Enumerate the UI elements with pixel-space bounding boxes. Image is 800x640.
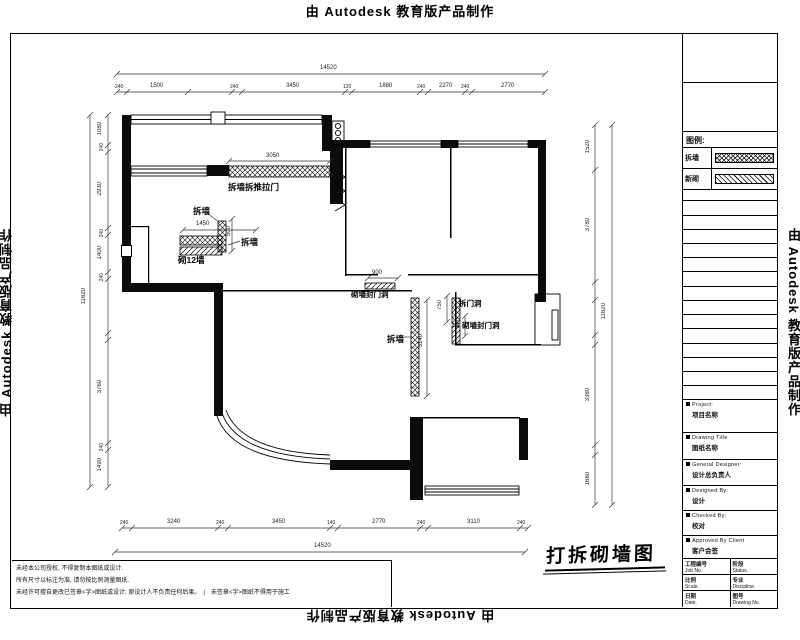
dim-bottom-small: 240: [417, 520, 425, 526]
dim-top-overall: 14520: [320, 65, 337, 71]
approved-label: Approved By Client: [686, 538, 774, 544]
status-en: Status.: [733, 568, 776, 574]
annotation-seal-door-opening-1: 砌墙封门洞: [351, 289, 389, 300]
annotation-build-12-wall: 砌12墙: [178, 254, 204, 266]
dim-label: 900: [372, 270, 382, 276]
dim-left: 2930: [97, 182, 103, 195]
field-date-drawingno: 日期 Date. 图号 Drawing No.: [683, 591, 777, 607]
note-line-1: 未经本公司授权, 不得复制本图纸或设计.: [16, 563, 391, 575]
field-jobno-status: 工程编号 Job No. 阶段 Status.: [683, 559, 777, 575]
field-project: Project: 项目名称: [683, 400, 777, 432]
title-block-empty-row: [683, 201, 777, 215]
scale-en: Scale.: [685, 584, 728, 590]
dim-top-small: 240: [417, 84, 425, 90]
dim-top: 2270: [439, 83, 452, 89]
date-cn: 日期: [685, 592, 728, 600]
title-block-empty-row: [683, 287, 777, 301]
dim-left-small: 240: [99, 143, 105, 151]
drawing-title-label: Drawing Title: [686, 435, 774, 441]
title-block-empty-row: [683, 272, 777, 286]
dim-label: 420: [456, 318, 462, 328]
status-cn: 阶段: [733, 560, 776, 568]
designed-by-value: 设计: [692, 495, 774, 505]
legend-new-swatch: [715, 174, 774, 184]
dim-bottom: 2770: [372, 519, 385, 525]
dim-right-overall: 11620: [601, 303, 607, 319]
legend-new-label: 新砌: [683, 169, 712, 189]
title-block-empty-row: [683, 216, 777, 230]
dim-left-small: 240: [99, 229, 105, 237]
title-block-empty-row: [683, 329, 777, 343]
field-designed-by: Designed By: 设计: [683, 486, 777, 511]
annotation-seal-door-opening-2: 砌墙封门洞: [462, 320, 500, 331]
dim-label: 500: [226, 226, 232, 236]
note-line-3: 未经许可擅自更改已签章<字>图纸或设计, 原设计人不负责任何后果。 | 未签章<…: [16, 587, 391, 599]
dim-left-small: 240: [99, 273, 105, 281]
dim-bottom-small: 140: [327, 520, 335, 526]
annotation-demolish-sliding-door: 拆墙拆推拉门: [228, 181, 279, 193]
dim-left-small: 240: [99, 443, 105, 451]
job-no-en: Job No.: [685, 568, 728, 574]
annotation-demolish-door-opening: 拆门洞: [459, 298, 482, 309]
notes-block: 未经本公司授权, 不得复制本图纸或设计. 所有尺寸以标注为准, 请勿按比例测量图…: [12, 560, 392, 607]
legend-demolish-swatch: [715, 153, 774, 163]
title-block-empty-row: [683, 33, 777, 83]
note-line-2: 所有尺寸以标注为准, 请勿按比例测量图纸.: [16, 575, 391, 587]
dim-top: 1880: [379, 83, 392, 89]
job-no-cn: 工程编号: [685, 560, 728, 568]
date-cell: 日期 Date.: [683, 591, 731, 607]
dim-bottom-overall: 14520: [314, 543, 331, 549]
dim-left-overall: 11620: [81, 288, 87, 304]
dim-bottom-small: 240: [120, 520, 128, 526]
dim-right: 3780: [585, 218, 591, 231]
legend-title: 图例:: [683, 132, 777, 148]
dim-top: 3450: [286, 83, 299, 89]
designed-by-label: Designed By:: [686, 488, 774, 494]
legend-row-new: 新砌: [683, 169, 777, 190]
floor-plan-canvas: [0, 0, 800, 640]
title-block: 图例: 拆墙 新砌 Project: 项目名称 Drawing Title 图纸: [682, 33, 777, 607]
title-block-empty-row: [683, 230, 777, 244]
title-block-empty-row: [683, 315, 777, 329]
checked-by-label: Checked By:: [686, 513, 774, 519]
dim-label: 3050: [266, 153, 279, 159]
dim-right: 1520: [585, 140, 591, 153]
discipline-en: Discipline.: [733, 584, 776, 590]
dim-left: 1490: [97, 458, 103, 471]
title-block-empty-row: [683, 386, 777, 400]
field-scale-discipline: 比例 Scale. 专业 Discipline.: [683, 575, 777, 591]
dim-top-small: 240: [461, 84, 469, 90]
title-block-empty-row: [683, 344, 777, 358]
title-block-empty-row: [683, 258, 777, 272]
dim-top: 1500: [150, 83, 163, 89]
annotation-demolish-wall-2: 拆墙: [241, 236, 258, 248]
discipline-cell: 专业 Discipline.: [731, 575, 778, 590]
dim-left: 3760: [97, 380, 103, 393]
date-en: Date.: [685, 600, 728, 606]
dim-bottom-small: 240: [517, 520, 525, 526]
dim-label: 750: [437, 300, 443, 310]
title-block-empty-row: [683, 372, 777, 386]
dim-label: 3140: [418, 334, 424, 347]
dim-bottom: 3240: [167, 519, 180, 525]
title-block-empty-row: [683, 244, 777, 258]
dim-top: 2770: [501, 83, 514, 89]
field-approved: Approved By Client 客户会签: [683, 536, 777, 559]
scale-cn: 比例: [685, 576, 728, 584]
title-block-empty-row: [683, 190, 777, 201]
field-general-designer: General Designer: 设计总负责人: [683, 460, 777, 487]
drawing-no-en: Drawing No.: [733, 600, 776, 606]
dim-left: 1080: [97, 122, 103, 135]
approved-value: 客户会签: [692, 545, 774, 555]
dim-bottom: 3110: [467, 519, 480, 525]
drawing-sheet: 由 Autodesk 教育版产品制作 由 Autodesk 教育版产品制作 由 …: [0, 0, 800, 640]
legend-demolish-label: 拆墙: [683, 148, 712, 168]
annotation-demolish-wall-1: 拆墙: [193, 205, 210, 217]
discipline-cn: 专业: [733, 576, 776, 584]
drawing-name-stamp: 打拆砌墙图: [546, 539, 657, 569]
field-drawing-title: Drawing Title 图纸名称: [683, 433, 777, 460]
general-designer-label: General Designer:: [686, 462, 774, 468]
scale-cell: 比例 Scale.: [683, 575, 731, 590]
legend-row-demolish: 拆墙: [683, 148, 777, 169]
dim-bottom: 3450: [272, 519, 285, 525]
dim-top-small: 120: [343, 84, 351, 90]
general-designer-value: 设计总负责人: [692, 469, 774, 479]
title-block-empty-row: [683, 358, 777, 372]
dim-right: 3380: [585, 388, 591, 401]
annotation-demolish-wall-3: 拆墙: [387, 333, 404, 345]
project-value: 项目名称: [692, 409, 774, 419]
job-no-cell: 工程编号 Job No.: [683, 559, 731, 574]
dim-left: 1400: [97, 246, 103, 259]
title-block-empty-row: [683, 301, 777, 315]
field-checked-by: Checked By: 校对: [683, 511, 777, 536]
checked-by-value: 校对: [692, 520, 774, 530]
hollow-column: [122, 246, 132, 257]
dim-right: 1680: [585, 472, 591, 485]
drawing-no-cell: 图号 Drawing No.: [731, 591, 778, 607]
drawing-no-cn: 图号: [733, 592, 776, 600]
drawing-title-value: 图纸名称: [692, 442, 774, 452]
dim-bottom-small: 240: [216, 520, 224, 526]
project-label: Project:: [686, 402, 774, 408]
dim-top-small: 240: [230, 84, 238, 90]
title-block-empty-row: [683, 83, 777, 132]
dim-top-small: 240: [115, 84, 123, 90]
dim-label: 1450: [196, 221, 209, 227]
status-cell: 阶段 Status.: [731, 559, 778, 574]
